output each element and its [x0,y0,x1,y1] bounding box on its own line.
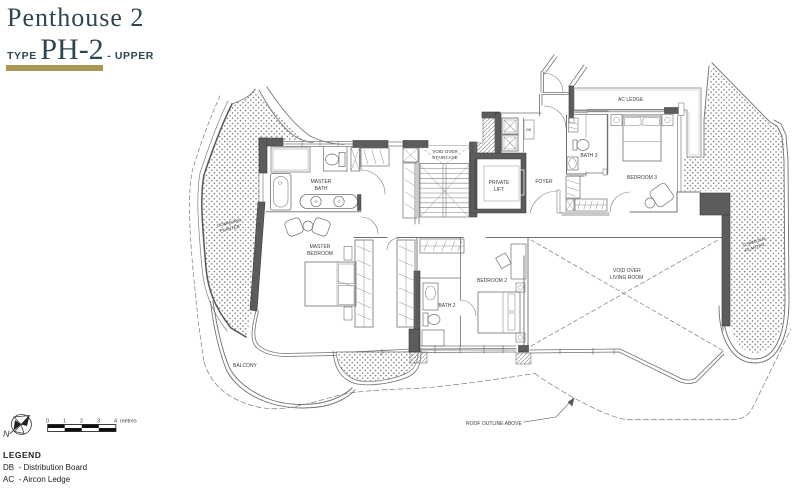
svg-text:BEDROOM 3: BEDROOM 3 [627,175,657,181]
svg-text:ROOF OUTLINE ABOVE: ROOF OUTLINE ABOVE [466,421,523,427]
svg-text:LIVING ROOM: LIVING ROOM [610,275,643,281]
svg-text:metres: metres [120,419,137,425]
svg-text:LIFT: LIFT [494,187,504,193]
svg-text:VOID OVER: VOID OVER [613,268,641,274]
svg-text:BATH 2: BATH 2 [438,303,455,309]
svg-text:BALCONY: BALCONY [233,363,258,369]
svg-text:BEDROOM: BEDROOM [307,251,333,257]
svg-text:BATH 3: BATH 3 [580,153,597,159]
svg-text:MASTER: MASTER [311,179,332,185]
svg-text:N: N [3,429,10,439]
svg-text:BEDROOM 2: BEDROOM 2 [477,278,507,284]
svg-text:BATH: BATH [315,186,328,192]
svg-text:VOID OVER: VOID OVER [432,149,458,154]
svg-text:MASTER: MASTER [310,244,331,250]
svg-text:STAIRCASE: STAIRCASE [432,155,458,160]
svg-text:2: 2 [80,419,83,425]
svg-text:1: 1 [63,419,66,425]
svg-text:3: 3 [97,419,100,425]
svg-text:4: 4 [114,419,117,425]
svg-text:FOYER: FOYER [535,179,553,185]
svg-text:0: 0 [46,419,49,425]
svg-text:DB: DB [526,128,532,132]
svg-text:AC LEDGE: AC LEDGE [618,97,644,103]
svg-text:PRIVATE: PRIVATE [489,180,510,186]
